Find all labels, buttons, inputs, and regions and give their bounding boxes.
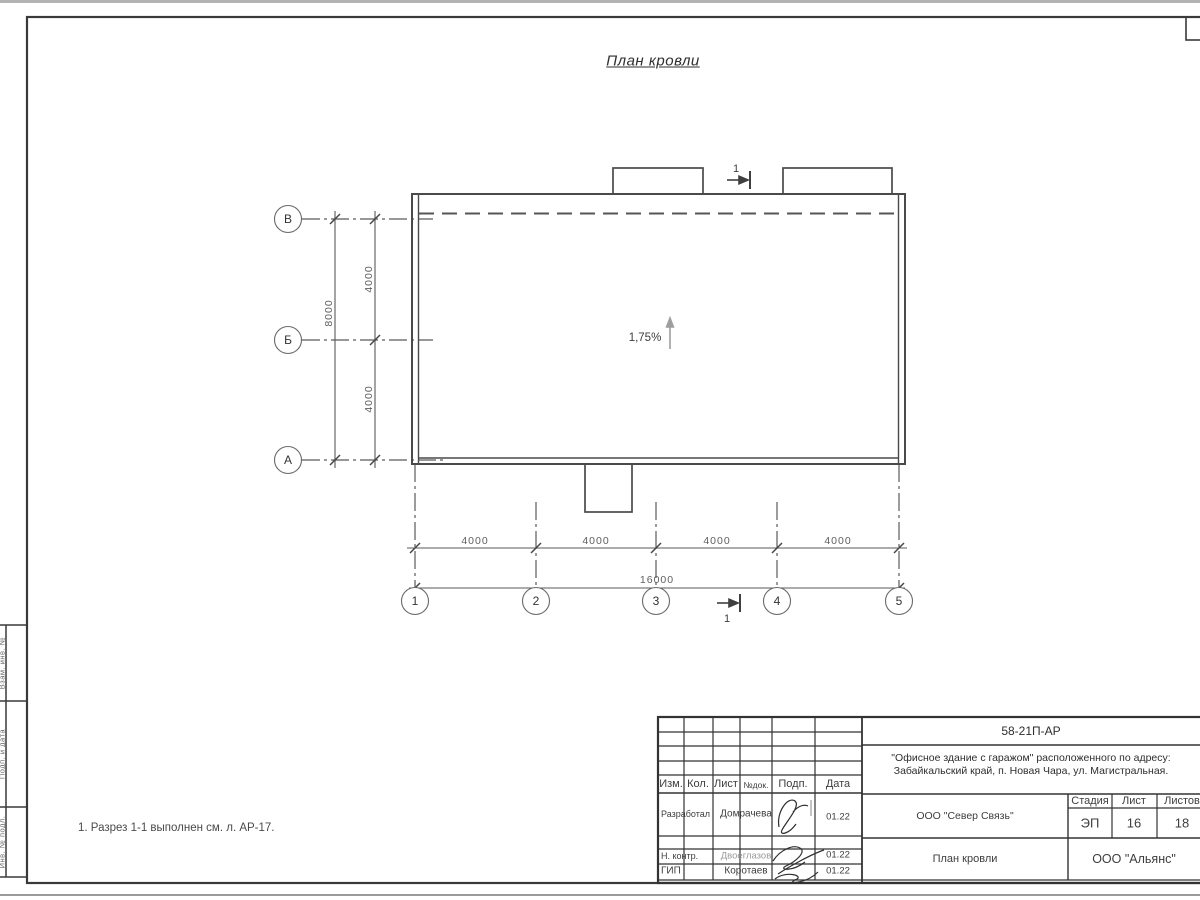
dim-bottom-3: 4000 (703, 535, 730, 547)
axis-label-3: 3 (653, 594, 660, 608)
sheets-value: 18 (1175, 816, 1189, 831)
sheet-label: Лист (1122, 795, 1146, 807)
axis-label-v: В (284, 212, 292, 226)
axis-label-a: А (284, 453, 292, 467)
axis-label-2: 2 (533, 594, 540, 608)
sheet-title: План кровли (933, 853, 998, 865)
doc-number: 58-21П-АР (1001, 724, 1060, 738)
axis-label-b: Б (284, 333, 292, 347)
strip-cell-vzam: Взам. инв. № (0, 637, 7, 689)
paper-top-edge (0, 0, 1200, 3)
frame-corner-box (1186, 17, 1200, 40)
section-label-bottom: 1 (724, 613, 730, 625)
row-gip-date: 01.22 (826, 866, 850, 877)
dim-left-4000-bottom: 4000 (363, 385, 375, 412)
stage-value: ЭП (1081, 816, 1100, 831)
roof-area (412, 194, 905, 464)
roof-vent-left (613, 168, 703, 194)
dim-bottom-total: 16000 (640, 574, 674, 586)
row-developer-name: Домрачева (720, 809, 772, 820)
col-kol: Кол. (687, 778, 709, 790)
section-label-top: 1 (733, 163, 739, 175)
col-izm: Изм. (659, 778, 683, 790)
row-developer-date: 01.22 (826, 812, 850, 823)
axis-label-5: 5 (896, 594, 903, 608)
drawing-sheet: План кровли 1,75% 1. Разрез 1-1 выполнен… (0, 0, 1200, 900)
row-gip-role: ГИП (661, 866, 681, 877)
col-data: Дата (826, 778, 850, 790)
dim-bottom-4: 4000 (824, 535, 851, 547)
drawing-note: 1. Разрез 1-1 выполнен см. л. АР-17. (78, 822, 275, 834)
stage-label: Стадия (1071, 795, 1109, 807)
row-ncontr-date: 01.22 (826, 850, 850, 861)
row-gip-name: Коротаев (724, 866, 767, 877)
dim-left-8000: 8000 (323, 299, 335, 326)
col-list: Лист (714, 778, 738, 790)
customer-name: ООО "Север Связь" (916, 810, 1013, 822)
axis-label-4: 4 (774, 594, 781, 608)
project-line2: Забайкальский край, п. Новая Чара, ул. М… (894, 765, 1169, 777)
signature-developer (779, 800, 808, 833)
paper-bottom-edge (0, 894, 1200, 896)
row-ncontr-name: Двоеглазов (721, 851, 772, 862)
strip-cell-inv: Инв. № подл. (0, 816, 7, 869)
dim-left-4000-top: 4000 (363, 265, 375, 292)
axis-label-1: 1 (412, 594, 419, 608)
row-ncontr-role: Н. контр. (661, 851, 698, 861)
col-ndok: №док. (744, 780, 769, 790)
dim-bottom-1: 4000 (461, 535, 488, 547)
strip-cell-podp: Подп. и дата (0, 729, 7, 779)
project-line1: "Офисное здание с гаражом" расположенног… (891, 752, 1170, 764)
company-name: ООО "Альянс" (1092, 852, 1176, 866)
signatures (773, 800, 824, 882)
roof-vent-right (783, 168, 892, 194)
sheets-label: Листов (1164, 795, 1200, 807)
drawing-title: План кровли (606, 53, 700, 70)
sheet-value: 16 (1127, 816, 1141, 831)
dim-bottom-2: 4000 (582, 535, 609, 547)
entrance-canopy (585, 464, 632, 512)
row-developer-role: Разработал (661, 809, 710, 819)
col-podp: Подп. (778, 778, 807, 790)
slope-label: 1,75% (629, 332, 662, 344)
